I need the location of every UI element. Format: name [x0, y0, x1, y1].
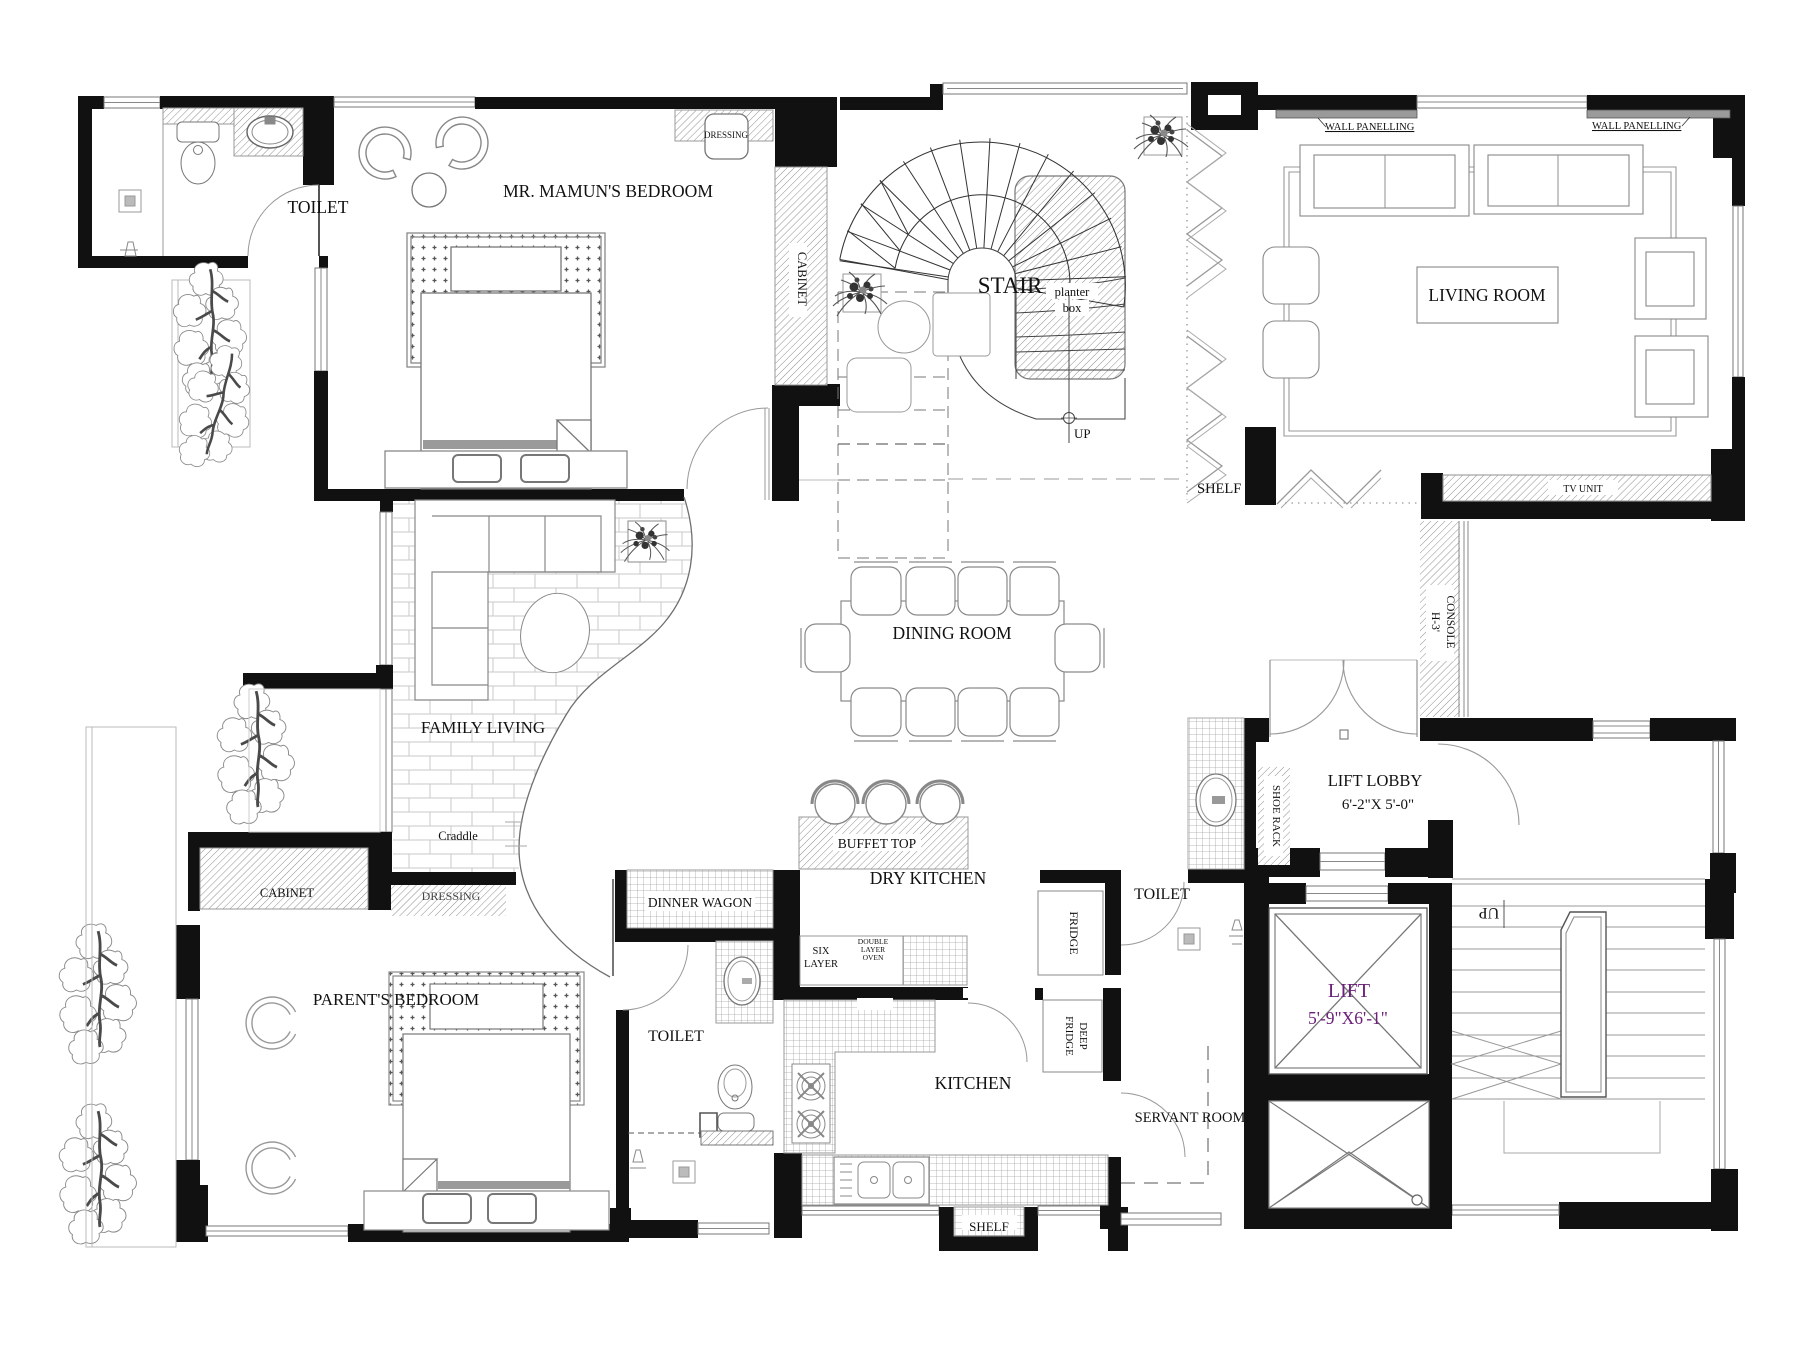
- svg-text:MR. MAMUN'S BEDROOM: MR. MAMUN'S BEDROOM: [503, 181, 713, 201]
- svg-text:CABINET: CABINET: [260, 886, 315, 900]
- svg-text:DEEP: DEEP: [1077, 1022, 1089, 1050]
- svg-text:CABINET: CABINET: [795, 252, 809, 307]
- svg-text:SERVANT ROOM: SERVANT ROOM: [1135, 1110, 1246, 1126]
- svg-text:SHELF: SHELF: [1197, 481, 1241, 497]
- svg-text:6'-2"X 5'-0": 6'-2"X 5'-0": [1342, 797, 1414, 813]
- svg-text:FRIDGE: FRIDGE: [1067, 911, 1081, 954]
- svg-text:TOILET: TOILET: [288, 197, 349, 217]
- svg-text:WALL PANELLING: WALL PANELLING: [1325, 122, 1415, 133]
- svg-text:Craddle: Craddle: [438, 829, 478, 843]
- svg-text:FAMILY LIVING: FAMILY LIVING: [421, 718, 545, 737]
- svg-text:UP: UP: [1479, 904, 1500, 921]
- svg-text:DRESSING: DRESSING: [422, 889, 481, 903]
- svg-text:LAYER: LAYER: [804, 959, 838, 970]
- svg-text:WALL PANELLING: WALL PANELLING: [1592, 121, 1682, 132]
- svg-text:box: box: [1063, 301, 1083, 315]
- svg-text:DINING ROOM: DINING ROOM: [892, 623, 1012, 643]
- svg-text:STAIR: STAIR: [978, 273, 1043, 298]
- svg-text:DRESSING: DRESSING: [704, 130, 749, 140]
- svg-text:planter: planter: [1055, 285, 1091, 299]
- svg-text:CONSOLE: CONSOLE: [1444, 595, 1456, 648]
- svg-text:H-3': H-3': [1429, 612, 1441, 632]
- svg-text:SHELF: SHELF: [969, 1219, 1009, 1234]
- svg-text:TV UNIT: TV UNIT: [1563, 484, 1603, 495]
- svg-text:DRY KITCHEN: DRY KITCHEN: [870, 868, 987, 888]
- svg-text:KITCHEN: KITCHEN: [935, 1073, 1012, 1093]
- svg-text:DINNER WAGON: DINNER WAGON: [648, 895, 753, 910]
- svg-text:UP: UP: [1074, 426, 1091, 441]
- svg-text:LIFT LOBBY: LIFT LOBBY: [1328, 771, 1423, 790]
- svg-text:5'-9"X6'-1": 5'-9"X6'-1": [1308, 1008, 1388, 1028]
- svg-text:BUFFET TOP: BUFFET TOP: [838, 836, 916, 851]
- svg-text:TOILET: TOILET: [648, 1028, 704, 1045]
- svg-text:LIFT: LIFT: [1328, 980, 1370, 1002]
- svg-text:SIX: SIX: [813, 946, 830, 957]
- svg-text:PARENT'S BEDROOM: PARENT'S BEDROOM: [313, 990, 479, 1009]
- svg-text:FRIDGE: FRIDGE: [1063, 1016, 1075, 1056]
- svg-text:OVEN: OVEN: [863, 953, 884, 962]
- svg-text:LIVING ROOM: LIVING ROOM: [1428, 285, 1546, 305]
- svg-text:TOILET: TOILET: [1134, 886, 1190, 903]
- svg-text:SHOE RACK: SHOE RACK: [1270, 785, 1282, 847]
